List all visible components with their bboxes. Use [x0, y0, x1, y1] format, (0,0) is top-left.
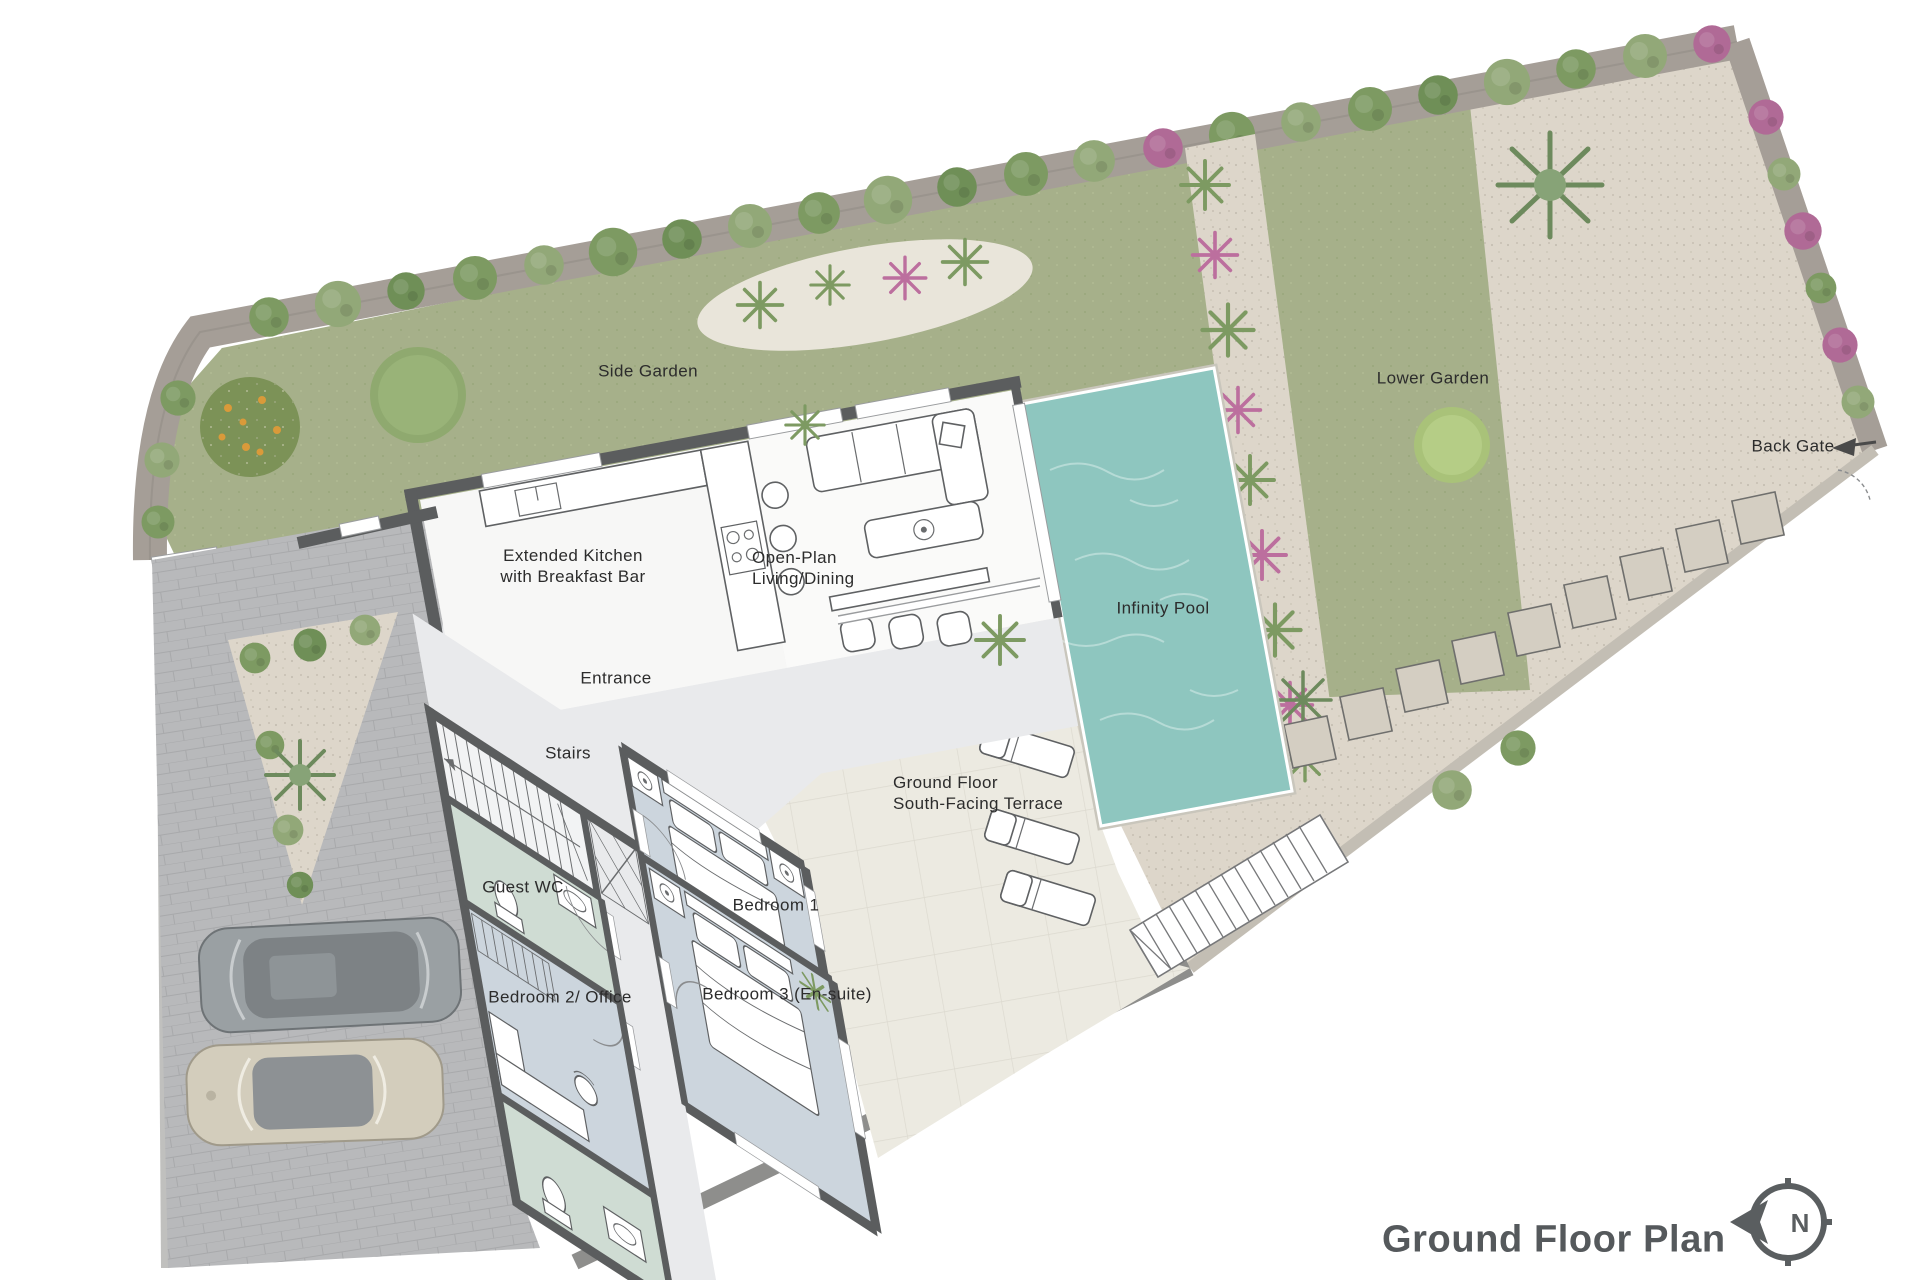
car-suv	[197, 916, 462, 1033]
car-sedan	[185, 1038, 444, 1147]
infinity-pool-label: Infinity Pool	[1116, 598, 1209, 619]
stairs-label: Stairs	[545, 743, 591, 764]
terrace-label: Ground Floor South-Facing Terrace	[893, 772, 1063, 814]
entrance-label: Entrance	[580, 668, 651, 689]
kitchen-label-line1: Extended Kitchen	[500, 545, 645, 566]
kitchen-label-line2: with Breakfast Bar	[500, 566, 645, 587]
corner-plant	[976, 616, 1024, 664]
living-label-line2: Living/Dining	[752, 568, 855, 589]
bedroom2-label: Bedroom 2/ Office	[488, 987, 632, 1008]
lower-garden-label: Lower Garden	[1377, 368, 1490, 389]
floor-plan-canvas: Side Garden Lower Garden Back Gate Exten…	[0, 0, 1920, 1280]
floor-plan-drawing	[0, 0, 1920, 1280]
guest-wc-label: Guest WC	[482, 877, 564, 898]
page-title: Ground Floor Plan	[1382, 1219, 1726, 1262]
side-garden-label: Side Garden	[598, 361, 698, 382]
kitchen-label: Extended Kitchen with Breakfast Bar	[500, 545, 645, 587]
back-gate-label: Back Gate	[1752, 436, 1835, 457]
living-corner-plant	[786, 406, 824, 444]
svg-text:N: N	[1791, 1208, 1810, 1238]
north-compass-icon: N	[1722, 1160, 1852, 1280]
terrace-label-line2: South-Facing Terrace	[893, 793, 1063, 814]
living-label-line1: Open-Plan	[752, 547, 855, 568]
living-label: Open-Plan Living/Dining	[752, 547, 855, 589]
bedroom3-label: Bedroom 3 (En-suite)	[702, 984, 872, 1005]
terrace-label-line1: Ground Floor	[893, 772, 1063, 793]
bedroom1-label: Bedroom 1	[733, 895, 820, 916]
